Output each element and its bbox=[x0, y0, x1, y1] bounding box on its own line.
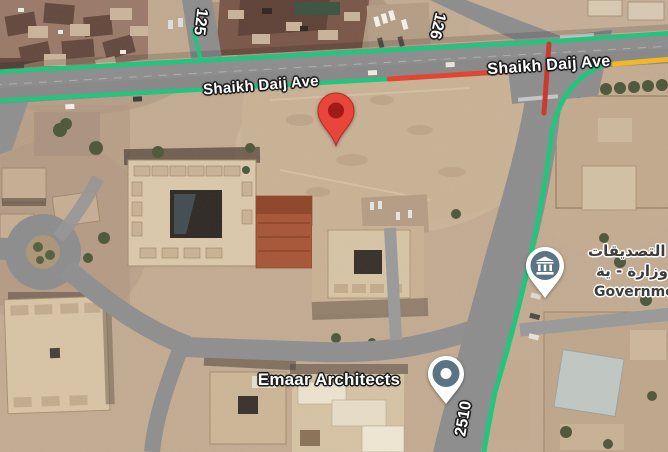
destination-pin[interactable] bbox=[314, 90, 358, 153]
poi-label-government-line2[interactable]: وزارة - ية... bbox=[596, 263, 668, 280]
poi-marker-dot-icon bbox=[441, 368, 452, 379]
poi-label-government-line1[interactable]: التصديقات bbox=[588, 243, 665, 260]
emaar-poi-marker[interactable] bbox=[426, 355, 466, 410]
government-poi-marker[interactable] bbox=[524, 246, 566, 305]
poi-label-government-line3[interactable]: Government... bbox=[594, 285, 668, 300]
poi-label-emaar-architects[interactable]: Emaar Architects bbox=[234, 371, 424, 390]
map-canvas[interactable]: Shaikh Daij Ave Shaikh Daij Ave 125 126 … bbox=[0, 0, 668, 452]
destination-pin-dot bbox=[328, 103, 344, 119]
destination-pin-body bbox=[318, 93, 354, 146]
